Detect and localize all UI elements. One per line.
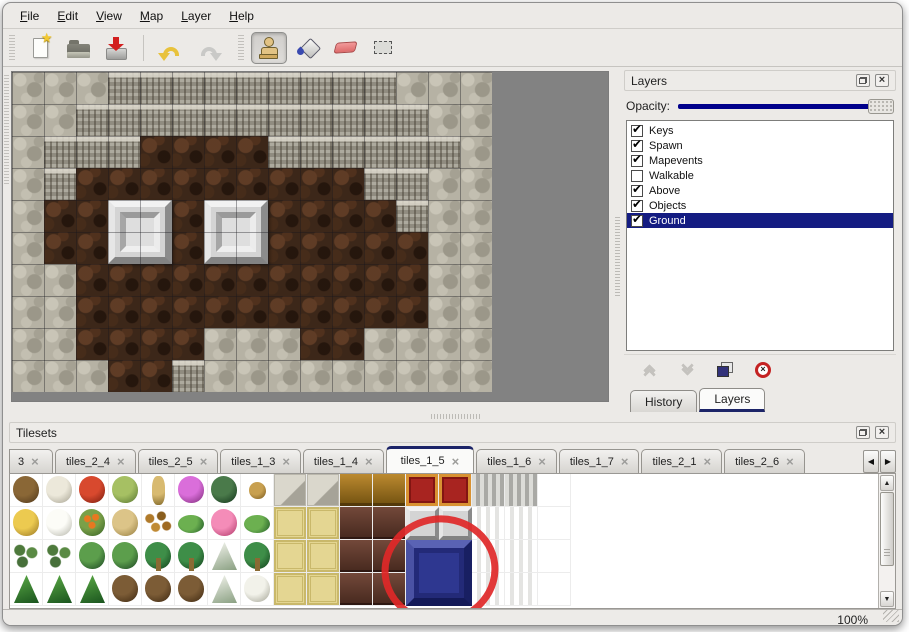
map-tile-cliff-face[interactable] [236, 104, 268, 136]
tileset-tile-conetree[interactable] [10, 573, 43, 606]
resize-grip-icon[interactable] [883, 609, 899, 622]
menu-label: elp [238, 9, 254, 23]
map-tile-brown-floor[interactable] [44, 200, 76, 232]
scrollbar-track[interactable] [879, 566, 895, 590]
tileset-tile-gnarl[interactable] [175, 573, 208, 606]
map-tile-brown-floor[interactable] [364, 296, 396, 328]
map-tile-rock[interactable] [44, 72, 76, 104]
map-tile-cliff-face[interactable] [172, 104, 204, 136]
tileset-tab-tiles_1_7[interactable]: tiles_1_7× [559, 449, 640, 473]
tileset-tile-mat[interactable] [307, 507, 340, 540]
map-tile-rock[interactable] [268, 328, 300, 360]
close-icon: × [879, 427, 885, 438]
map-tile-rock[interactable] [44, 264, 76, 296]
tileset-tile-curtw[interactable] [472, 540, 505, 573]
tileset-tile-sprig[interactable] [43, 540, 76, 573]
map-tile-brown-floor[interactable] [108, 328, 140, 360]
map-tile-rock[interactable] [236, 360, 268, 392]
close-tab-icon[interactable]: × [365, 455, 373, 468]
raise-layer-button[interactable] [638, 359, 660, 381]
layer-row-objects[interactable]: ✔Objects [627, 198, 893, 213]
map-tile-brown-floor[interactable] [76, 264, 108, 296]
map-tile-brown-floor[interactable] [396, 232, 428, 264]
map-tile-cliff-face[interactable] [396, 168, 428, 200]
map-tile-brown-floor[interactable] [140, 328, 172, 360]
tileset-tile-pinesnow[interactable] [208, 573, 241, 606]
map-tile-brown-floor[interactable] [140, 264, 172, 296]
tileset-tile-mat[interactable] [307, 540, 340, 573]
tileset-tile-empty[interactable] [538, 474, 571, 507]
scrollbar-thumb[interactable] [880, 492, 894, 566]
tileset-tile-snagwhite[interactable] [43, 474, 76, 507]
main-area: Layers × Opacity: ✔Keys✔Spawn✔MapeventsW… [3, 67, 902, 412]
tileset-tile-palm[interactable] [241, 540, 274, 573]
map-tile-cliff-face[interactable] [108, 104, 140, 136]
map-tile-cliff-face[interactable] [396, 200, 428, 232]
map-tile-rock[interactable] [44, 328, 76, 360]
tileset-tab-tiles_2_6[interactable]: tiles_2_6× [724, 449, 805, 473]
tileset-tile-curtw[interactable] [505, 507, 538, 540]
map-tile-rock[interactable] [204, 328, 236, 360]
map-tile-cliff-face[interactable] [76, 136, 108, 168]
tileset-scrollbar[interactable]: ▲ ▼ [878, 474, 895, 608]
tileset-tile-curtg[interactable] [472, 474, 505, 507]
select-tool-button[interactable] [365, 32, 401, 64]
map-tile-brown-floor[interactable] [332, 296, 364, 328]
close-tab-icon[interactable]: × [704, 455, 712, 468]
tileset-tile-conetree[interactable] [43, 573, 76, 606]
eraser-tool-button[interactable] [327, 32, 363, 64]
close-panel-button[interactable]: × [875, 74, 889, 87]
map-tile-rock[interactable] [12, 136, 44, 168]
map-tile-rock[interactable] [76, 72, 108, 104]
status-bar: 100% [3, 609, 902, 626]
tileset-tile-lilypad[interactable] [241, 507, 274, 540]
map-tile-cliff-face[interactable] [268, 136, 300, 168]
map-tile-rock[interactable] [460, 296, 492, 328]
close-tab-icon[interactable]: × [200, 455, 208, 468]
dock-tab-layers[interactable]: Layers [699, 388, 765, 412]
close-tab-icon[interactable]: × [538, 455, 546, 468]
tileset-tile-curtw[interactable] [472, 573, 505, 606]
tileset-tile-palm[interactable] [142, 540, 175, 573]
map-tile-cliff-face[interactable] [108, 72, 140, 104]
map-tile-rock[interactable] [396, 72, 428, 104]
close-tab-icon[interactable]: × [621, 455, 629, 468]
map-tile-brown-floor[interactable] [172, 200, 204, 232]
map-tile-cliff-face[interactable] [332, 104, 364, 136]
map-tile-brown-floor[interactable] [172, 232, 204, 264]
new-file-button[interactable]: ★ [22, 32, 58, 64]
selected-blue-tile-block[interactable] [406, 540, 472, 606]
map-tile-brown-floor[interactable] [300, 168, 332, 200]
map-tile-brown-floor[interactable] [172, 168, 204, 200]
tileset-tile-curtg[interactable] [505, 474, 538, 507]
map-pillar-block[interactable] [108, 200, 172, 264]
dock-tab-history[interactable]: History [630, 390, 697, 412]
map-tile-rock[interactable] [428, 72, 460, 104]
map-tile-brown-floor[interactable] [236, 136, 268, 168]
map-tile-rock[interactable] [428, 328, 460, 360]
tileset-tab-tiles_1_4[interactable]: tiles_1_4× [303, 449, 384, 473]
map-tile-cliff-face[interactable] [44, 168, 76, 200]
map-tile-brown-floor[interactable] [76, 200, 108, 232]
map-tile-rock[interactable] [460, 232, 492, 264]
map-pillar-block[interactable] [204, 200, 268, 264]
stamp-tool-button[interactable] [251, 32, 287, 64]
map-tile-brown-floor[interactable] [76, 232, 108, 264]
map-row [12, 136, 492, 168]
map-tile-rock[interactable] [428, 168, 460, 200]
fill-tool-button[interactable] [289, 32, 325, 64]
map-tile-cliff-face[interactable] [332, 72, 364, 104]
tileset-tile-mat[interactable] [274, 573, 307, 606]
close-tilesets-button[interactable]: × [875, 426, 889, 439]
map-tile-rock[interactable] [364, 360, 396, 392]
tileset-tile-conetree[interactable] [76, 573, 109, 606]
map-tile-brown-floor[interactable] [268, 232, 300, 264]
map-tile-cliff-face[interactable] [140, 104, 172, 136]
map-tile-rock[interactable] [44, 296, 76, 328]
tileset-tile-silver[interactable] [406, 507, 439, 540]
layer-row-spawn[interactable]: ✔Spawn [627, 138, 893, 153]
map-tile-brown-floor[interactable] [364, 232, 396, 264]
tileset-tile-palm[interactable] [175, 540, 208, 573]
opacity-slider-handle[interactable] [868, 99, 894, 114]
close-tab-icon[interactable]: × [31, 455, 39, 468]
map-tile-brown-floor[interactable] [332, 200, 364, 232]
tileset-tab-tiles_1_6[interactable]: tiles_1_6× [476, 449, 557, 473]
map-tile-cliff-face[interactable] [268, 104, 300, 136]
map-tile-rock[interactable] [460, 104, 492, 136]
map-tile-rock[interactable] [236, 328, 268, 360]
tileset-tab-tiles_1_3[interactable]: tiles_1_3× [220, 449, 301, 473]
map-tile-rock[interactable] [12, 264, 44, 296]
tileset-tile-bloomorange[interactable] [76, 507, 109, 540]
map-tile-brown-floor[interactable] [108, 360, 140, 392]
map-tile-rock[interactable] [428, 200, 460, 232]
map-tile-brown-floor[interactable] [204, 136, 236, 168]
map-tile-cliff-face[interactable] [268, 72, 300, 104]
map-tile-brown-floor[interactable] [300, 296, 332, 328]
map-tile-brown-floor[interactable] [236, 168, 268, 200]
map-tile-rock[interactable] [44, 360, 76, 392]
map-tile-brown-floor[interactable] [172, 328, 204, 360]
tileset-tile-bush[interactable] [76, 540, 109, 573]
map-tile-brown-floor[interactable] [300, 264, 332, 296]
pane-grip[interactable] [4, 75, 9, 185]
map-tile-rock[interactable] [460, 72, 492, 104]
layer-checkbox[interactable]: ✔ [631, 185, 643, 197]
map-tile-brown-floor[interactable] [396, 264, 428, 296]
map-tile-brown-floor[interactable] [204, 296, 236, 328]
undo-button[interactable] [153, 32, 189, 64]
tileset-tab-3[interactable]: 3× [9, 449, 53, 473]
map-tile-brown-floor[interactable] [300, 232, 332, 264]
map-tile-brown-floor[interactable] [76, 168, 108, 200]
map-tile-rock[interactable] [428, 264, 460, 296]
tileset-tile-rug[interactable] [406, 474, 439, 507]
tileset-tile-woodd[interactable] [340, 573, 373, 606]
scroll-tabs-right-button[interactable]: ▶ [880, 450, 896, 473]
float-panel-button[interactable] [856, 74, 870, 87]
layer-row-mapevents[interactable]: ✔Mapevents [627, 153, 893, 168]
layer-row-keys[interactable]: ✔Keys [627, 123, 893, 138]
menu-mnemonic: H [229, 9, 238, 23]
map-tile-brown-floor[interactable] [332, 264, 364, 296]
menu-file[interactable]: File [11, 6, 48, 26]
map-tile-rock[interactable] [76, 360, 108, 392]
map-tile-cliff-face[interactable] [364, 136, 396, 168]
map-tile-rock[interactable] [460, 360, 492, 392]
map-tile-brown-floor[interactable] [332, 168, 364, 200]
map-tile-rock[interactable] [44, 104, 76, 136]
map-tile-cliff-face[interactable] [300, 72, 332, 104]
map-tile-brown-floor[interactable] [268, 168, 300, 200]
tileset-tile-trunktan[interactable] [142, 474, 175, 507]
tileset-tile-bush[interactable] [109, 540, 142, 573]
map-tile-brown-floor[interactable] [140, 136, 172, 168]
layer-row-above[interactable]: ✔Above [627, 183, 893, 198]
layer-checkbox[interactable]: ✔ [631, 200, 643, 212]
tileset-tile-mat[interactable] [274, 507, 307, 540]
map-tile-rock[interactable] [300, 360, 332, 392]
tileset-tab-tiles_1_5[interactable]: tiles_1_5× [386, 446, 475, 473]
map-tile-rock[interactable] [12, 360, 44, 392]
map-tile-rock[interactable] [12, 168, 44, 200]
map-tile-brown-floor[interactable] [140, 296, 172, 328]
close-tab-icon[interactable]: × [786, 455, 794, 468]
duplicate-layer-button[interactable] [714, 359, 736, 381]
delete-layer-button[interactable]: × [752, 359, 774, 381]
tileset-tile-stumpgreen[interactable] [109, 474, 142, 507]
tileset-tile-bloompink[interactable] [208, 507, 241, 540]
vertical-splitter[interactable] [613, 67, 622, 412]
map-tile-rock[interactable] [364, 328, 396, 360]
tileset-tile-barewood[interactable] [10, 474, 43, 507]
tileset-tile-woodd[interactable] [373, 507, 406, 540]
map-tile-brown-floor[interactable] [172, 136, 204, 168]
tileset-tile-twig[interactable] [241, 474, 274, 507]
map-tile-cliff-face[interactable] [364, 72, 396, 104]
map-tile-rock[interactable] [428, 296, 460, 328]
map-tile-cliff-face[interactable] [364, 168, 396, 200]
zoom-level: 100% [837, 613, 868, 627]
open-file-button[interactable] [60, 32, 96, 64]
tileset-tile-sprig[interactable] [10, 540, 43, 573]
layer-list: ✔Keys✔Spawn✔MapeventsWalkable✔Above✔Obje… [626, 120, 894, 351]
tileset-tile-bloompurple[interactable] [175, 474, 208, 507]
tileset-tile-mat[interactable] [274, 540, 307, 573]
map-tile-cliff-face[interactable] [396, 104, 428, 136]
map-tile-brown-floor[interactable] [76, 296, 108, 328]
map-tile-cliff-face[interactable] [172, 72, 204, 104]
map-tile-cliff-face[interactable] [76, 104, 108, 136]
map-tile-rock[interactable] [12, 328, 44, 360]
tileset-tile-leaves[interactable] [142, 507, 175, 540]
map-tile-cliff-face[interactable] [44, 136, 76, 168]
map-tile-cliff-face[interactable] [300, 104, 332, 136]
map-tile-rock[interactable] [12, 104, 44, 136]
menu-edit[interactable]: Edit [48, 6, 87, 26]
toolbar-handle-2[interactable] [238, 35, 244, 61]
map-tile-rock[interactable] [268, 360, 300, 392]
map-tile-brown-floor[interactable] [268, 296, 300, 328]
tileset-tile-gnarl[interactable] [109, 573, 142, 606]
close-tab-icon[interactable]: × [452, 455, 460, 468]
tileset-tile-pinesnow[interactable] [208, 540, 241, 573]
map-tile-cliff-face[interactable] [364, 104, 396, 136]
tileset-tile-empty[interactable] [538, 540, 571, 573]
map-tile-cliff-face[interactable] [236, 72, 268, 104]
tileset-tile-woodd[interactable] [340, 540, 373, 573]
map-tile-brown-floor[interactable] [332, 328, 364, 360]
layer-label: Walkable [649, 170, 694, 182]
tileset-tile-lilypad[interactable] [175, 507, 208, 540]
map-tile-cliff-face[interactable] [172, 360, 204, 392]
map-tile-cliff-face[interactable] [204, 104, 236, 136]
float-icon [859, 77, 867, 84]
map-tile-rock[interactable] [428, 232, 460, 264]
map-tile-brown-floor[interactable] [236, 264, 268, 296]
map-tile-brown-floor[interactable] [204, 168, 236, 200]
tileset-tile-empty[interactable] [538, 573, 571, 606]
map-tile-cliff-face[interactable] [428, 136, 460, 168]
tileset-tile-stone[interactable] [307, 474, 340, 507]
map-tile-brown-floor[interactable] [268, 264, 300, 296]
redo-button[interactable] [191, 32, 227, 64]
close-tab-icon[interactable]: × [282, 455, 290, 468]
tileset-tile-snowtree[interactable] [241, 573, 274, 606]
tileset-tile-curtw[interactable] [505, 540, 538, 573]
map-tile-rock[interactable] [428, 104, 460, 136]
map-tile-cliff-face[interactable] [332, 136, 364, 168]
map-tile-rock[interactable] [12, 72, 44, 104]
toolbar-handle[interactable] [9, 35, 15, 61]
tileset-tile-curtw[interactable] [472, 507, 505, 540]
map-tile-brown-floor[interactable] [332, 232, 364, 264]
tileset-tile-fern[interactable] [208, 474, 241, 507]
layer-checkbox[interactable]: ✔ [631, 125, 643, 137]
layer-checkbox[interactable]: ✔ [631, 140, 643, 152]
tileset-tile-empty[interactable] [538, 507, 571, 540]
tileset-tab-tiles_2_4[interactable]: tiles_2_4× [55, 449, 136, 473]
tileset-tile-curtw[interactable] [505, 573, 538, 606]
map-tile-brown-floor[interactable] [364, 200, 396, 232]
map-tiles[interactable] [12, 72, 492, 392]
map-tile-brown-floor[interactable] [44, 232, 76, 264]
map-tile-brown-floor[interactable] [140, 360, 172, 392]
tileset-tab-tiles_2_1[interactable]: tiles_2_1× [641, 449, 722, 473]
map-tile-rock[interactable] [12, 232, 44, 264]
map-tile-brown-floor[interactable] [204, 264, 236, 296]
map-tile-rock[interactable] [12, 200, 44, 232]
map-tile-rock[interactable] [396, 360, 428, 392]
horizontal-splitter[interactable] [3, 412, 902, 421]
tileset-tile-gnarl[interactable] [142, 573, 175, 606]
map-tile-brown-floor[interactable] [76, 328, 108, 360]
map-tile-rock[interactable] [428, 360, 460, 392]
tileset-tile-rug[interactable] [439, 474, 472, 507]
layer-row-walkable[interactable]: Walkable [627, 168, 893, 183]
tileset-tile-silver[interactable] [439, 507, 472, 540]
save-file-button[interactable] [98, 32, 134, 64]
map-tile-rock[interactable] [460, 168, 492, 200]
tileset-tile-woodd[interactable] [373, 540, 406, 573]
scroll-down-button[interactable]: ▼ [880, 591, 894, 607]
layer-checkbox[interactable] [631, 170, 643, 182]
map-tile-rock[interactable] [12, 296, 44, 328]
tileset-tile-wood[interactable] [340, 474, 373, 507]
menu-label: ap [150, 9, 163, 23]
tileset-tile-woodd[interactable] [373, 573, 406, 606]
map-tile-cliff-face[interactable] [204, 72, 236, 104]
tileset-tile-tuft[interactable] [109, 507, 142, 540]
opacity-slider[interactable] [678, 98, 894, 115]
map-tile-brown-floor[interactable] [108, 264, 140, 296]
lower-layer-button[interactable] [676, 359, 698, 381]
map-canvas[interactable] [11, 71, 609, 402]
tileset-tile-snowmound[interactable] [43, 507, 76, 540]
menu-view[interactable]: View [87, 6, 131, 26]
map-tile-rock[interactable] [460, 264, 492, 296]
map-tile-cliff-face[interactable] [300, 136, 332, 168]
map-tile-brown-floor[interactable] [140, 168, 172, 200]
layer-row-ground[interactable]: ✔Ground [627, 213, 893, 228]
menu-help[interactable]: Help [220, 6, 263, 26]
map-tile-rock[interactable] [204, 360, 236, 392]
float-tilesets-button[interactable] [856, 426, 870, 439]
map-tile-cliff-face[interactable] [396, 136, 428, 168]
tileset-tab-tiles_2_5[interactable]: tiles_2_5× [138, 449, 219, 473]
map-tile-brown-floor[interactable] [364, 264, 396, 296]
tileset-tile-hay[interactable] [10, 507, 43, 540]
tileset-area[interactable] [10, 474, 878, 608]
map-tile-brown-floor[interactable] [300, 328, 332, 360]
layer-checkbox[interactable]: ✔ [631, 155, 643, 167]
tileset-grid[interactable] [10, 474, 571, 606]
map-tile-rock[interactable] [460, 136, 492, 168]
map-tile-brown-floor[interactable] [236, 296, 268, 328]
map-tile-cliff-face[interactable] [140, 72, 172, 104]
map-tile-brown-floor[interactable] [268, 200, 300, 232]
map-tile-brown-floor[interactable] [172, 264, 204, 296]
map-tile-brown-floor[interactable] [108, 296, 140, 328]
tileset-tile-stone[interactable] [274, 474, 307, 507]
layer-checkbox[interactable]: ✔ [631, 215, 643, 227]
map-tile-brown-floor[interactable] [396, 296, 428, 328]
menu-layer[interactable]: Layer [172, 6, 220, 26]
scroll-up-button[interactable]: ▲ [880, 475, 894, 491]
tileset-tab-label: tiles_2_4 [66, 456, 110, 468]
tileset-tile-wood[interactable] [373, 474, 406, 507]
scroll-tabs-left-button[interactable]: ◀ [863, 450, 879, 473]
tileset-tile-woodd[interactable] [340, 507, 373, 540]
map-tile-rock[interactable] [332, 360, 364, 392]
menu-map[interactable]: Map [131, 6, 172, 26]
map-tile-rock[interactable] [396, 328, 428, 360]
map-tile-cliff-face[interactable] [108, 136, 140, 168]
tileset-tile-bloomred[interactable] [76, 474, 109, 507]
map-tile-rock[interactable] [460, 328, 492, 360]
map-tile-brown-floor[interactable] [108, 168, 140, 200]
map-tile-brown-floor[interactable] [300, 200, 332, 232]
map-tile-brown-floor[interactable] [172, 296, 204, 328]
layer-label: Mapevents [649, 155, 703, 167]
close-tab-icon[interactable]: × [117, 455, 125, 468]
tileset-tile-mat[interactable] [307, 573, 340, 606]
map-tile-rock[interactable] [460, 200, 492, 232]
